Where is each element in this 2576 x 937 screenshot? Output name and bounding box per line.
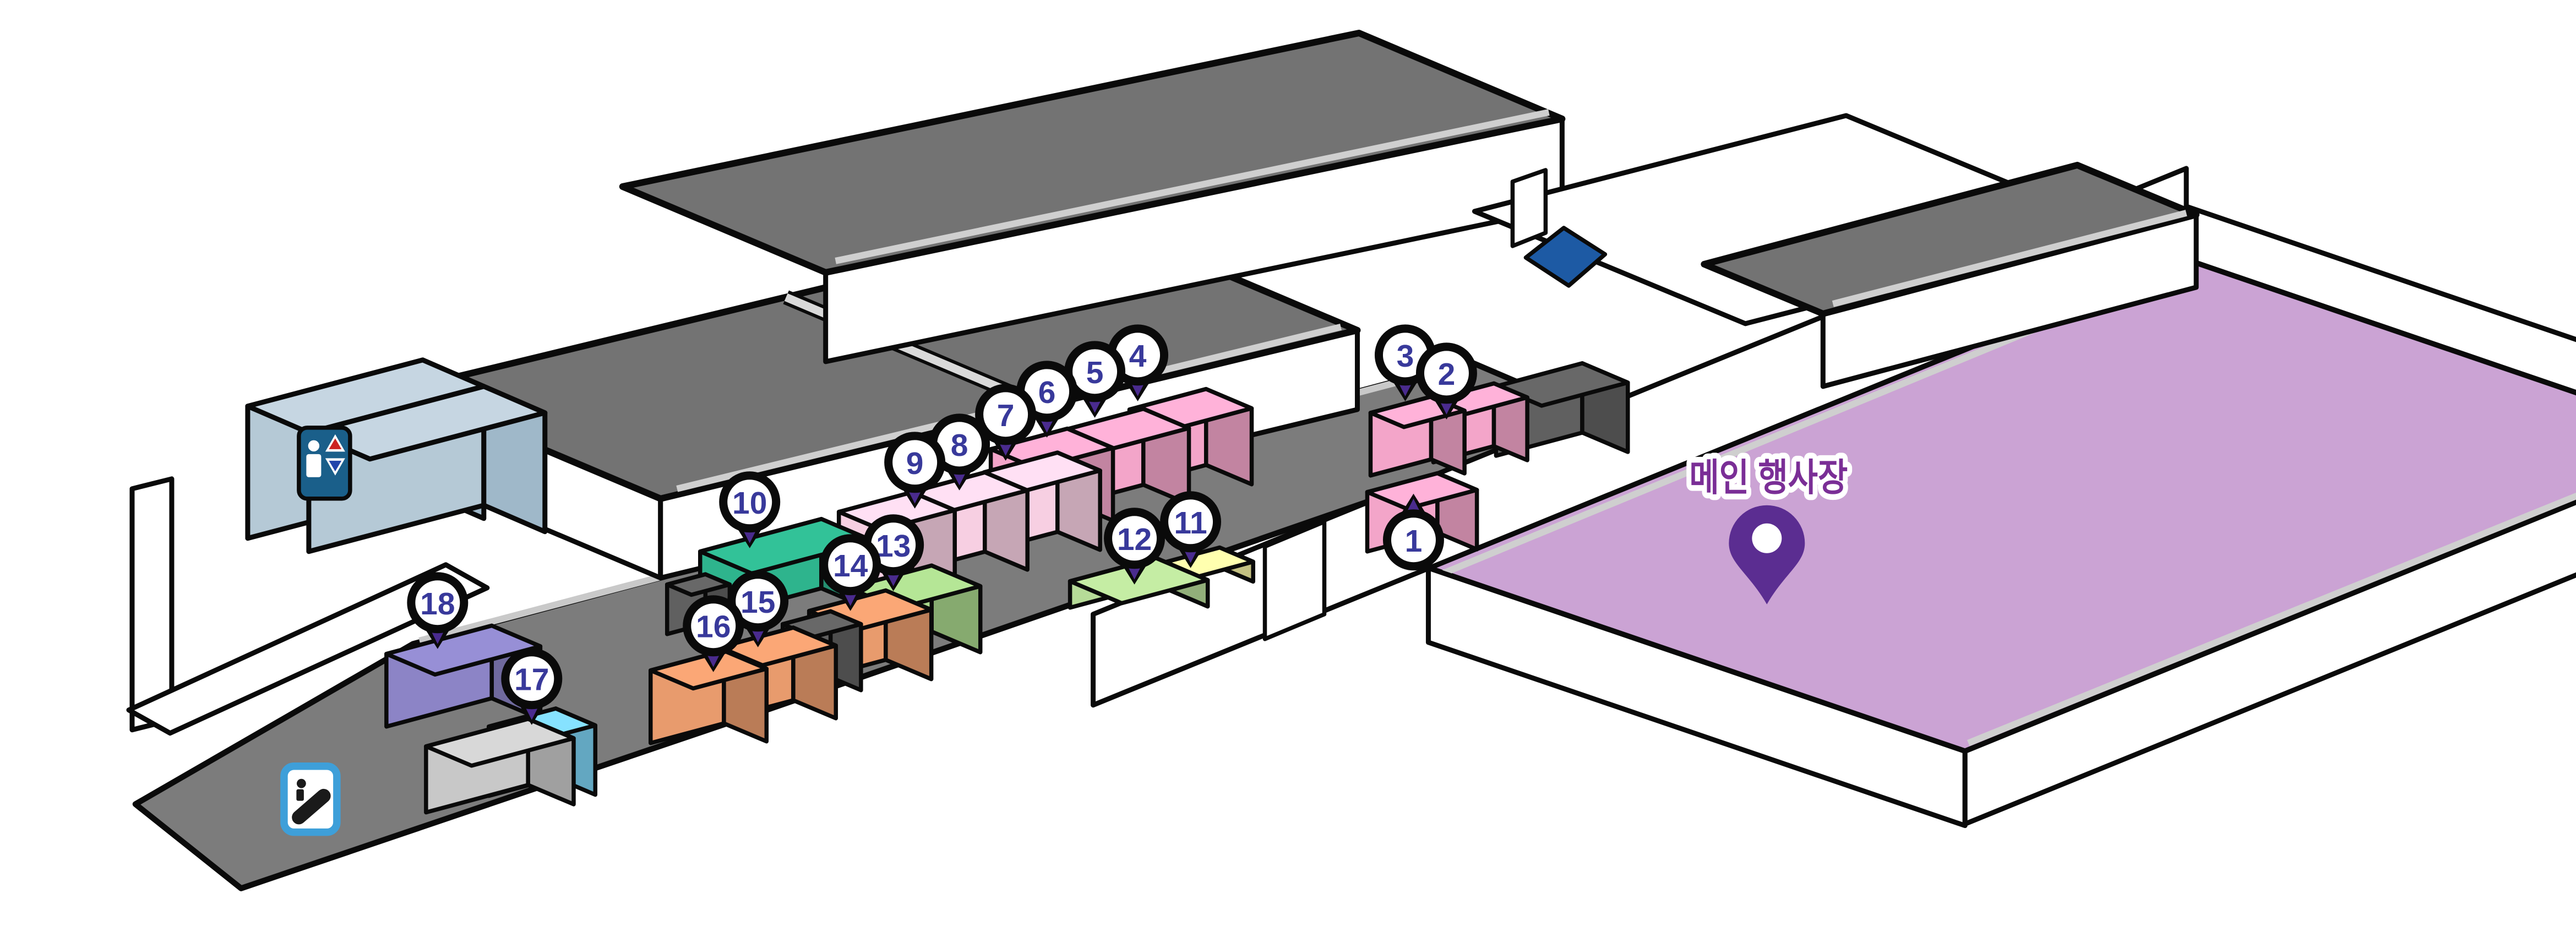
booth-16-box	[651, 651, 767, 743]
pin-number: 7	[997, 398, 1015, 433]
pin-number: 13	[876, 529, 911, 564]
pin-number: 16	[696, 609, 731, 645]
escalator-icon	[284, 766, 337, 832]
pin-number: 6	[1038, 375, 1056, 410]
elevator-person-body	[306, 454, 321, 477]
pin-number: 4	[1129, 339, 1147, 374]
escalator-person-head	[297, 779, 306, 788]
pin-number: 2	[1438, 357, 1456, 392]
pin-number: 11	[1174, 505, 1207, 541]
pin-number: 8	[951, 428, 968, 463]
pin-number: 12	[1117, 522, 1152, 557]
pin-number: 15	[740, 585, 775, 620]
main-hall-label: 메인 행사장	[1689, 456, 1848, 499]
pin-number: 3	[1397, 339, 1414, 374]
pin-number: 9	[906, 446, 924, 481]
blue-room-door	[1512, 170, 1545, 246]
elevator-icon	[299, 428, 350, 499]
pin-number: 1	[1405, 524, 1423, 559]
pin-number: 5	[1086, 355, 1104, 390]
pin-number: 17	[514, 662, 549, 698]
floor-map-page: 345267819101112131415181617 메인 행사장	[0, 0, 2576, 936]
floor-map-canvas: 345267819101112131415181617 메인 행사장	[0, 0, 2576, 936]
pin-number: 10	[732, 486, 767, 521]
pin-number: 18	[420, 586, 455, 622]
escalator-person-body	[296, 789, 303, 801]
main-hall-pin-hole	[1752, 524, 1782, 553]
elevator-person-head	[308, 440, 319, 451]
pin-number: 14	[833, 548, 868, 584]
